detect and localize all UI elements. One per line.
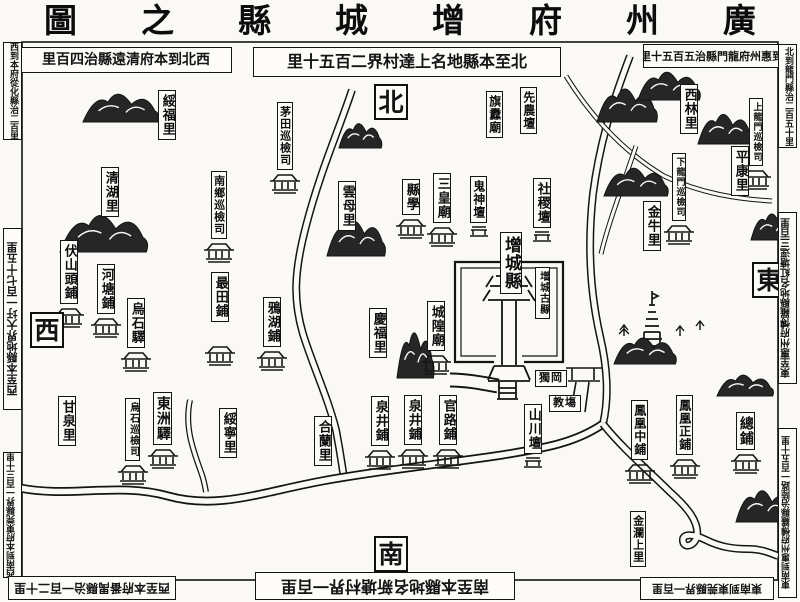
place-label-pingkang-li: 平康里	[731, 146, 749, 196]
border-note-bottom-left: 西至本府番禺縣治一百二十里	[8, 576, 176, 600]
place-label-zong-pu: 總鋪	[736, 412, 755, 450]
border-note-bottom-right: 東南到東莞縣界一百里	[640, 577, 774, 600]
border-note-left-bottom: 西南到本府東莞縣界一百三十里	[3, 452, 22, 578]
place-label-quanjing-pu-west: 泉井鋪	[371, 396, 389, 446]
place-label-suifu-li: 綏福里	[158, 90, 176, 140]
station-icon-yahu-pu	[256, 349, 288, 371]
post-station-icon	[117, 463, 149, 485]
place-label-nanxiang-xunjiansi: 南鄉巡檢司	[211, 171, 227, 239]
station-icon-chenghuang-miao	[420, 353, 452, 375]
place-label-sheji-tan: 社稷壇	[533, 178, 551, 228]
direction-marker-north: 北	[374, 84, 408, 120]
title-char: 城	[335, 4, 368, 37]
border-note-top-right: 里十五百五治縣門龍府州惠到北	[643, 44, 791, 68]
mountain	[339, 124, 382, 148]
altar-icon	[531, 230, 553, 244]
place-label-fushantou-pu: 伏山頭鋪	[60, 240, 78, 304]
place-label-dongzhou-yi: 東洲驛	[153, 392, 172, 445]
title-char: 縣	[238, 4, 271, 37]
station-icon-quanjing-pu-west	[364, 448, 396, 470]
place-label-xilin-li: 西林里	[680, 84, 698, 134]
title-char: 圖	[44, 4, 77, 37]
altar-icon	[522, 456, 544, 470]
station-icon-zong-pu	[730, 452, 762, 474]
place-label-qingfu-li: 慶福里	[369, 308, 387, 358]
place-label-jinniu-li: 金牛里	[643, 201, 661, 251]
post-station-icon	[669, 457, 701, 479]
post-station-icon	[90, 316, 122, 338]
post-station-icon	[395, 217, 427, 239]
mountain	[83, 94, 159, 122]
post-station-icon	[730, 452, 762, 474]
border-note-right-middle: 東至惠州府愽羅縣地名紅塘逕三百里	[778, 212, 797, 384]
station-icon-hetang-pu	[90, 316, 122, 338]
post-station-icon	[203, 241, 235, 263]
mountain	[327, 221, 385, 256]
station-icon-wushi-yi	[120, 350, 152, 372]
direction-marker-west: 西	[30, 312, 64, 348]
place-label-maotian-xunjiansi: 茅田巡檢司	[277, 102, 293, 170]
place-label-yahu-pu: 鴉湖鋪	[263, 297, 281, 347]
post-station-icon	[663, 223, 695, 245]
title-char: 之	[141, 4, 174, 37]
title-char: 增	[432, 4, 465, 37]
title-char: 府	[529, 4, 562, 37]
station-icon-xian-xue	[395, 217, 427, 239]
title-char: 州	[626, 4, 659, 37]
border-note-right-bottom: 東南到惠州府愽羅縣治陸路一百五十里	[778, 428, 797, 598]
altar-icon	[468, 225, 490, 239]
city-gate-tower	[483, 276, 535, 399]
station-icon-maotian-xunjiansi	[269, 172, 301, 194]
zengcheng-county-map: 圖之縣城增府州廣 北西東南里百四治縣遠清府本到北西里十五百二界村達上名地縣本至北…	[0, 0, 800, 602]
station-icon-nanxiang-xunjiansi	[203, 241, 235, 263]
place-label-fenghuang-zheng-pu: 鳳凰正鋪	[676, 395, 693, 455]
post-station-icon	[432, 447, 464, 469]
place-label-zengcheng-guxian: 增城古縣	[535, 267, 550, 319]
station-icon-fenghuang-zhong-pu	[624, 462, 656, 484]
station-icon-zuitian-pu	[204, 344, 236, 366]
altar-icon-sheji-tan	[531, 230, 553, 244]
place-label-hetang-pu: 河塘鋪	[97, 264, 115, 314]
post-station-icon	[147, 447, 179, 469]
place-label-shanglongmen-xunjiansi: 上龍門巡檢司	[749, 98, 763, 166]
place-label-jinlan-shang-li: 金瀾上里	[630, 511, 646, 567]
post-station-icon	[204, 344, 236, 366]
direction-marker-south: 南	[374, 536, 408, 572]
station-icon-fenghuang-zheng-pu	[669, 457, 701, 479]
post-station-icon	[364, 448, 396, 470]
post-station-icon	[120, 350, 152, 372]
post-station-icon	[269, 172, 301, 194]
title-char: 廣	[723, 4, 756, 37]
place-label-wushi-xunjiansi: 烏石巡檢司	[125, 398, 140, 461]
station-icon-dongzhou-yi	[147, 447, 179, 469]
place-label-zengcheng-xian: 增城縣	[500, 232, 522, 294]
border-note-top-center: 里十五百二界村達上名地縣本至北	[253, 47, 561, 77]
place-label-xialongmen-xunjiansi: 下龍門巡檢司	[672, 153, 686, 221]
mountain	[717, 375, 773, 396]
place-label-helan-li: 合蘭里	[314, 416, 332, 466]
place-label-fenghuang-zhong-pu: 鳳凰中鋪	[631, 400, 648, 460]
station-icon-quanjing-pu-east	[397, 447, 429, 469]
place-label-guishen-tan: 鬼神壇	[470, 176, 487, 223]
place-label-jiao-chang: 教塲	[549, 395, 581, 412]
post-station-icon	[420, 353, 452, 375]
place-label-qidao-miao: 旗纛廟	[486, 91, 503, 138]
post-station-icon	[624, 462, 656, 484]
place-label-du-gang: 獨岡	[535, 370, 567, 387]
place-label-yunmu-li: 雲母里	[338, 181, 356, 231]
post-station-icon	[397, 447, 429, 469]
border-note-bottom-center: 南至本縣地名新塘村界一百里	[255, 572, 515, 600]
altar-icon-guishen-tan	[468, 225, 490, 239]
map-title: 圖之縣城增府州廣	[44, 0, 756, 40]
place-label-qinghu-li: 清湖里	[101, 167, 119, 217]
mountain	[698, 114, 753, 144]
altar-icon-shanchuan-tan	[522, 456, 544, 470]
place-label-guanlu-pu: 官路鋪	[439, 395, 457, 445]
border-note-left-top: 西到本府從化縣治二百里	[3, 42, 22, 140]
place-label-chenghuang-miao: 城隍廟	[427, 301, 445, 351]
station-icon-guanlu-pu	[432, 447, 464, 469]
post-station-icon	[426, 225, 458, 247]
place-label-ganquan-li: 甘泉里	[58, 396, 76, 446]
border-note-right-top: 北到龍門縣治二百五十里	[778, 44, 797, 148]
mountain	[614, 338, 676, 364]
place-label-xian-xue: 縣學	[402, 179, 420, 215]
place-label-zuitian-pu: 最田鋪	[211, 272, 229, 322]
station-icon-sanhuang-miao	[426, 225, 458, 247]
place-label-shanchuan-tan: 山川壇	[524, 404, 542, 454]
trees	[619, 321, 704, 336]
station-icon-wushi-xunjiansi	[117, 463, 149, 485]
place-label-quanjing-pu-east: 泉井鋪	[404, 395, 422, 445]
border-note-top-left: 里百四治縣遠清府本到北西	[20, 47, 232, 73]
place-label-sanhuang-miao: 三皇廟	[433, 173, 451, 223]
place-label-wushi-yi: 烏石驛	[127, 298, 145, 348]
station-icon-xialongmen-xunjiansi	[663, 223, 695, 245]
border-note-left-middle: 西至本縣地界大圩一百七十五里	[3, 228, 22, 410]
post-station-icon	[256, 349, 288, 371]
place-label-suining-li: 綏寧里	[219, 408, 237, 458]
place-label-xiannong-tan: 先農壇	[520, 87, 537, 134]
